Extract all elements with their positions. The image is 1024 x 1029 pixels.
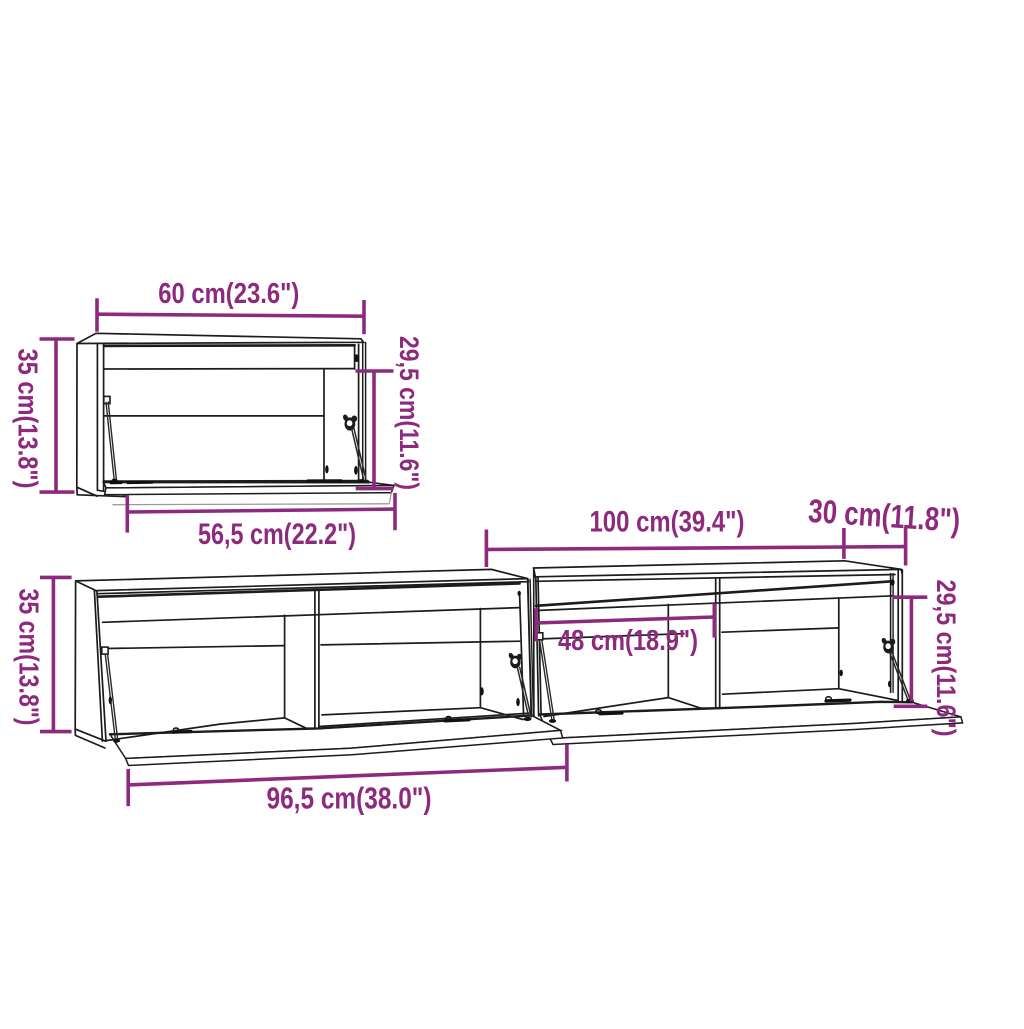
svg-text:35 cm(13.8"): 35 cm(13.8") <box>14 589 45 726</box>
svg-text:29,5 cm(11.6"): 29,5 cm(11.6") <box>931 580 961 737</box>
svg-text:96,5 cm(38.0"): 96,5 cm(38.0") <box>267 781 432 816</box>
svg-text:29,5 cm(11.6"): 29,5 cm(11.6") <box>394 336 424 490</box>
svg-text:60 cm(23.6"): 60 cm(23.6") <box>158 278 299 310</box>
svg-text:56,5 cm(22.2"): 56,5 cm(22.2") <box>198 518 356 551</box>
svg-text:35 cm(13.8"): 35 cm(13.8") <box>13 349 44 489</box>
svg-text:100 cm(39.4"): 100 cm(39.4") <box>590 506 745 539</box>
svg-text:48 cm(18.9"): 48 cm(18.9") <box>558 625 698 657</box>
